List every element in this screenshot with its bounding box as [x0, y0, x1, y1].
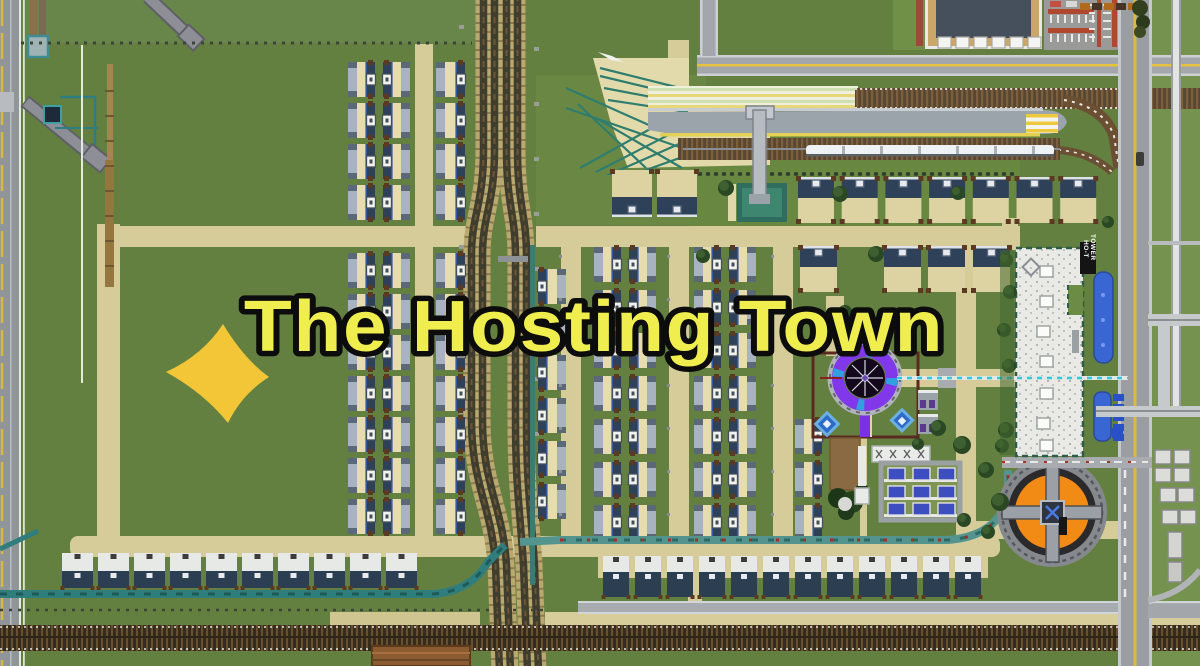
svg-text:HO-T: HO-T: [1082, 240, 1089, 258]
svg-text:TOWER: TOWER: [1089, 234, 1096, 261]
svg-text:The Hosting Town: The Hosting Town: [244, 286, 944, 366]
